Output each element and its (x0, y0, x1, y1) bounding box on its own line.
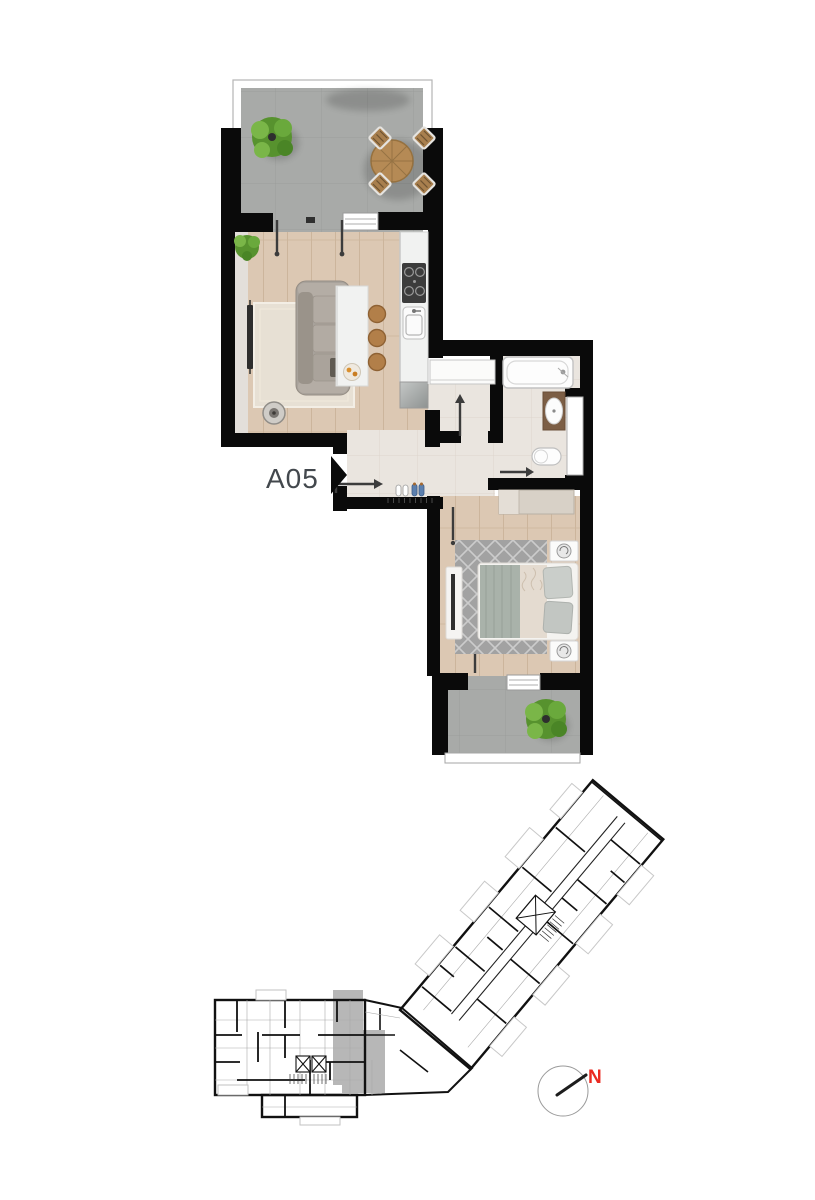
kitchen-fixtures (400, 232, 428, 408)
north-label: N (588, 1067, 602, 1088)
bar-stools (369, 306, 386, 371)
terrace-door-stop (306, 217, 315, 223)
tv-wall-strip (235, 232, 248, 434)
overview-balcony (415, 935, 453, 976)
floor-lamp-icon (263, 402, 285, 424)
bathtub-icon (503, 357, 573, 388)
floor-plan-page: A05 (0, 0, 815, 1200)
overview-balcony (256, 990, 286, 1000)
washbasin-icon (543, 392, 565, 430)
fridge-icon (400, 382, 428, 408)
elevator-cores-icon (296, 1056, 326, 1072)
toilet-icon (532, 448, 561, 465)
stairs-icon (290, 1074, 326, 1084)
terrace-plant-icon (251, 117, 293, 158)
kitchen-island (336, 286, 368, 386)
balcony-plant-icon (525, 699, 567, 739)
balcony-railing (445, 753, 580, 763)
overview-balcony (218, 1085, 248, 1095)
unit-label: A05 (266, 463, 319, 494)
double-bed (478, 563, 578, 640)
unit-highlight (333, 990, 385, 1093)
building-overview: N (215, 769, 676, 1125)
compass: N (538, 1066, 602, 1116)
floor-plan-canvas: A05 (0, 0, 815, 1200)
gas-hob-icon (402, 263, 426, 303)
fruit-tray-icon (344, 364, 361, 381)
tv-icon (247, 300, 253, 374)
kitchen-sink-icon (403, 307, 425, 339)
overview-balcony (505, 828, 543, 869)
bedroom-tv-icon (451, 574, 455, 630)
balcony-window (507, 675, 540, 690)
terrace-window (343, 213, 378, 230)
overview-balcony (460, 881, 498, 922)
apartment-plan: A05 (221, 80, 593, 763)
bathroom-recess (567, 397, 583, 475)
bedroom-tv-stand (446, 567, 462, 639)
overview-balcony (300, 1117, 340, 1125)
